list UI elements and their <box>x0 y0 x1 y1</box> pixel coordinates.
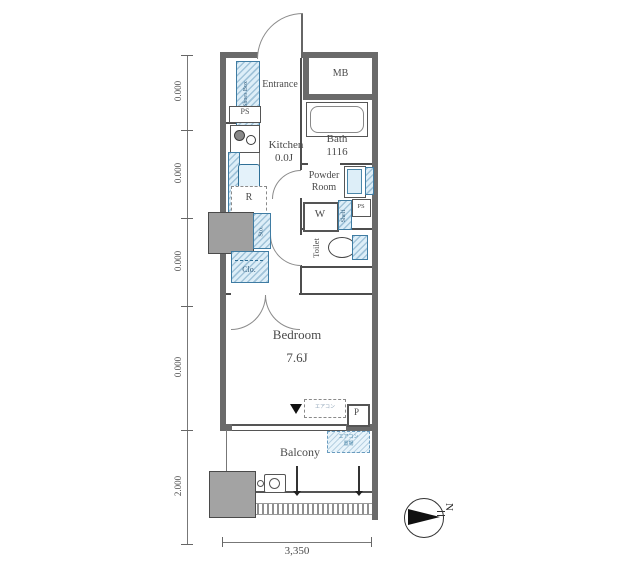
curtain-box-marker-icon <box>290 404 302 414</box>
pipe-space-powder: PS <box>352 199 371 217</box>
dim-tick <box>181 544 193 545</box>
partition-hall-bedroom-b <box>299 293 372 295</box>
toilet-cistern-icon <box>352 235 368 260</box>
slop-sink-drain <box>269 478 280 489</box>
structural-pillar-balcony <box>209 471 256 518</box>
ac-indoor-dashed-box: エアコン <box>304 399 346 418</box>
dim-label-left-1: 0.000 <box>173 64 183 118</box>
stove-icon <box>230 125 260 153</box>
balcony-railing-hatch <box>242 503 372 515</box>
compass-needle-icon <box>408 509 440 525</box>
drain-cap-icon <box>257 480 264 487</box>
kitchen-label: Kitchen <box>260 140 312 152</box>
dim-label-left-5: 2.000 <box>173 459 183 513</box>
closet-rod-line <box>235 260 263 261</box>
compass-north-label: N <box>441 500 455 514</box>
closet-box: Clo. <box>231 251 269 283</box>
structural-pillar-mid <box>208 212 254 254</box>
dim-tick <box>181 218 193 219</box>
vanity-sink-bowl <box>347 169 362 194</box>
toilet-label: Toilet <box>311 225 321 271</box>
shelf-box: Shelf <box>338 200 352 230</box>
dim-label-left-3: 0.000 <box>173 234 183 288</box>
bath-label: Bath <box>307 134 367 146</box>
ac-indoor-note: エアコン <box>305 405 345 410</box>
bedroom-door-arc-left <box>231 295 266 330</box>
dim-line-bottom <box>222 542 372 543</box>
washer-space: W <box>303 202 339 232</box>
ps-powder-label: PS <box>353 204 369 211</box>
post-foot-marker-icon <box>293 491 301 496</box>
mb-label: MB <box>309 69 372 80</box>
bath-size-label: 1116 <box>307 147 367 159</box>
pipe-label: P <box>349 408 364 417</box>
window-line-outer <box>232 424 346 426</box>
kitchen-size-label: 0.0J <box>258 153 310 165</box>
dim-tick <box>181 55 193 56</box>
pipe-box: P <box>347 404 370 427</box>
wall-top-right <box>303 52 378 58</box>
dim-tick <box>181 306 193 307</box>
dim-label-left-4: 0.000 <box>173 340 183 394</box>
stove-burner-icon <box>246 135 256 145</box>
entrance-door-arc <box>257 13 303 59</box>
bathtub-inner <box>310 106 364 133</box>
partition-bath-south-b <box>340 163 372 165</box>
storage-label: Sto. <box>257 207 266 257</box>
ac-outdoor-dashed-box: エアコン 置場 <box>327 431 370 453</box>
floor-plan: 0.000 0.000 0.000 0.000 2.000 3,350 MB E… <box>0 0 640 569</box>
dim-label-bottom: 3,350 <box>247 546 347 558</box>
ac-outdoor-note-1: エアコン <box>328 435 369 440</box>
wall-right <box>372 52 378 520</box>
closet-label: Clo. <box>232 266 266 274</box>
wall-top-left <box>220 52 258 58</box>
balcony-post-left <box>296 466 298 493</box>
entrance-label: Entrance <box>256 80 304 91</box>
compass-tick <box>437 515 445 516</box>
ps-entrance-label: PS <box>230 108 260 116</box>
post-foot-marker-icon <box>355 491 363 496</box>
slop-sink-icon <box>264 474 286 493</box>
washer-label: W <box>305 209 335 221</box>
stove-burner-icon <box>234 130 245 141</box>
powder-room-label-1: Powder <box>301 171 347 182</box>
dim-tick <box>181 130 193 131</box>
dim-label-left-2: 0.000 <box>173 146 183 200</box>
bedroom-door-arc-right <box>265 295 300 330</box>
storage-box: Sto. <box>253 213 271 249</box>
bedroom-size-label: 7.6J <box>247 351 347 365</box>
balcony-post-right <box>358 466 360 493</box>
dim-tick <box>222 537 223 547</box>
bedroom-label: Bedroom <box>247 328 347 342</box>
kitchen-door-arc <box>272 170 301 199</box>
pipe-space-entrance: PS <box>229 106 261 123</box>
dim-tick <box>371 537 372 547</box>
shelf-label: Shelf <box>340 192 348 240</box>
refrigerator-label: R <box>232 193 266 204</box>
wall-hatch-powder <box>365 167 374 195</box>
dim-line-vertical <box>187 55 188 545</box>
ac-outdoor-note-2: 置場 <box>328 442 369 447</box>
dim-tick <box>181 430 193 431</box>
bathtub-icon <box>306 102 368 137</box>
partition-center-lower <box>300 265 302 295</box>
toilet-door-arc <box>270 235 301 266</box>
mb-wall-bottom <box>303 94 378 100</box>
